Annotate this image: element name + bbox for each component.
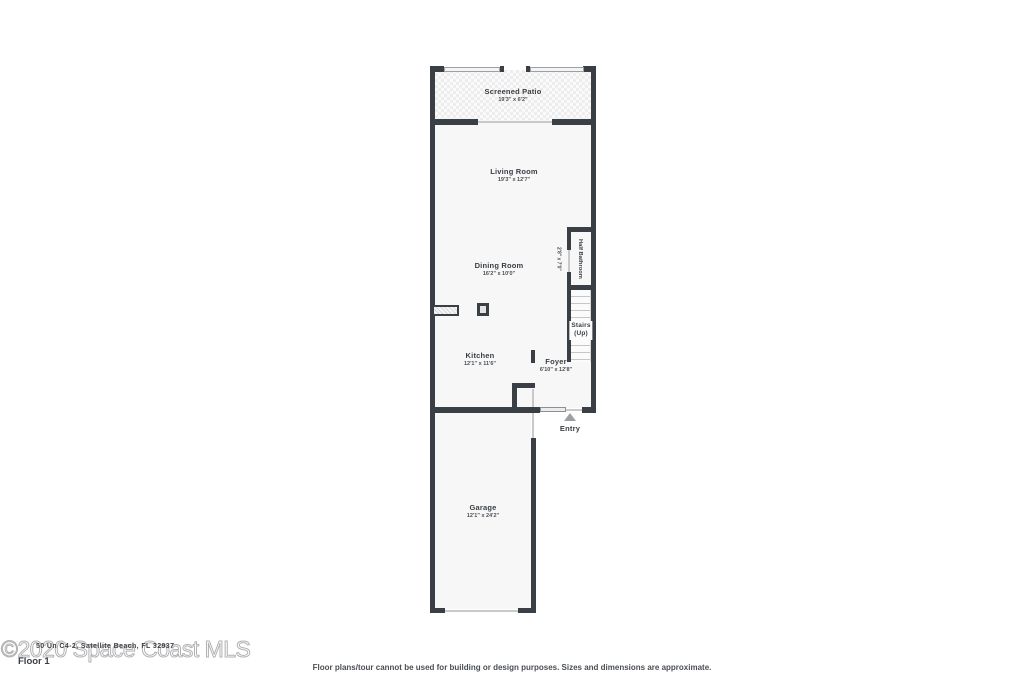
patio-screen-panel xyxy=(530,67,584,72)
wall-garage-bottom-left xyxy=(430,608,445,613)
room-dims: 12'1" x 11'6" xyxy=(464,361,496,368)
room-label-stairs: Stairs (Up) xyxy=(569,321,592,340)
wall-patio-living-right xyxy=(552,119,596,125)
wall-garage-bottom-right xyxy=(518,608,536,613)
room-label-kitchen: Kitchen 12'1" x 11'6" xyxy=(464,351,496,368)
room-label-garage: Garage 12'1" x 24'2" xyxy=(467,503,499,520)
room-dims: 19'3" x 12'7" xyxy=(490,177,538,184)
entry-door-leaf xyxy=(540,407,566,412)
room-dims: 6'10" x 12'8" xyxy=(540,367,572,374)
room-name: Foyer xyxy=(540,357,572,366)
patio-screen-post xyxy=(500,66,504,72)
room-dims: 12'1" x 24'2" xyxy=(467,513,499,520)
floor-number-label: Floor 1 xyxy=(18,656,50,667)
patio-screen-panel xyxy=(444,67,500,72)
kitchen-island xyxy=(477,303,489,316)
room-label-foyer: Foyer 6'10" x 12'8" xyxy=(540,357,572,374)
wall-patio-top-right-corner xyxy=(583,66,596,72)
wall-kitchen-foyer-stub xyxy=(531,350,535,363)
wall-patio-living-left xyxy=(430,119,478,125)
pantry-door-line xyxy=(532,389,534,407)
kitchen-counter xyxy=(432,305,459,316)
property-address: 50 Un C4-2, Satellite Beach, FL 32937 xyxy=(36,643,174,650)
room-name: Half Bathroom xyxy=(575,239,583,279)
room-label-half-bathroom: Half Bathroom 2'8" x 7'0" xyxy=(569,233,591,285)
floor-plan: Screened Patio 19'3" x 6'2" Living Room … xyxy=(0,0,1024,683)
entry-label: Entry xyxy=(560,424,580,433)
room-dims: 16'2" x 10'0" xyxy=(475,271,524,278)
wall-bathroom-top xyxy=(567,227,596,232)
entry-arrow-icon xyxy=(564,413,576,421)
room-name: Screened Patio xyxy=(485,87,542,96)
room-name: Garage xyxy=(467,503,499,512)
room-label-screened-patio: Screened Patio 19'3" x 6'2" xyxy=(485,87,542,104)
disclaimer-text: Floor plans/tour cannot be used for buil… xyxy=(313,663,712,672)
sliding-door-line xyxy=(478,121,552,123)
patio-screen-post xyxy=(526,66,530,72)
room-label-living-room: Living Room 19'3" x 12'7" xyxy=(490,167,538,184)
room-dims: 2'8" x 7'0" xyxy=(555,247,562,271)
wall-garage-right xyxy=(531,438,536,613)
wall-left xyxy=(430,66,435,613)
garage-door-line xyxy=(445,610,518,612)
wall-kitchen-bottom xyxy=(430,407,535,413)
garage-interior-door-line xyxy=(532,413,534,438)
room-name: Stairs xyxy=(571,322,590,330)
room-label-dining-room: Dining Room 16'2" x 10'0" xyxy=(475,261,524,278)
wall-foyer-bottom-corner xyxy=(582,407,596,413)
wall-patio-top-left-corner xyxy=(430,66,444,72)
room-name: Dining Room xyxy=(475,261,524,270)
room-name: Kitchen xyxy=(464,351,496,360)
room-name: Living Room xyxy=(490,167,538,176)
room-dims: 19'3" x 6'2" xyxy=(485,97,542,104)
stairs-direction: (Up) xyxy=(571,330,590,338)
room-name: Entry xyxy=(560,424,580,433)
